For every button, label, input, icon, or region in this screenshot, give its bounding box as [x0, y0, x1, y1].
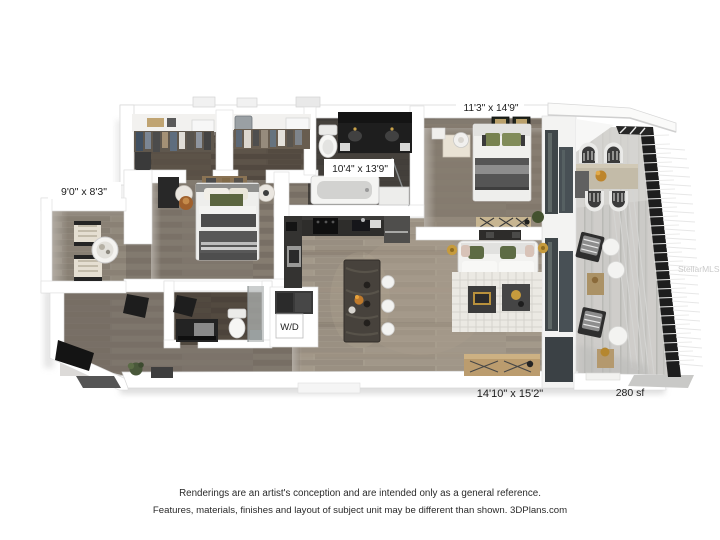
svg-text:10'4" x 13'9": 10'4" x 13'9": [332, 164, 388, 175]
svg-text:W/D: W/D: [280, 322, 299, 333]
svg-text:Features, materials, finishes: Features, materials, finishes and layout…: [153, 505, 567, 516]
svg-text:280 sf: 280 sf: [616, 387, 645, 399]
svg-text:14'10" x 15'2": 14'10" x 15'2": [477, 388, 544, 400]
svg-text:11'3" x 14'9": 11'3" x 14'9": [463, 103, 518, 114]
svg-text:Renderings are an artist's con: Renderings are an artist's conception an…: [179, 488, 541, 499]
svg-text:StellarMLS: StellarMLS: [678, 264, 720, 274]
svg-text:9'0" x 8'3": 9'0" x 8'3": [61, 186, 107, 198]
